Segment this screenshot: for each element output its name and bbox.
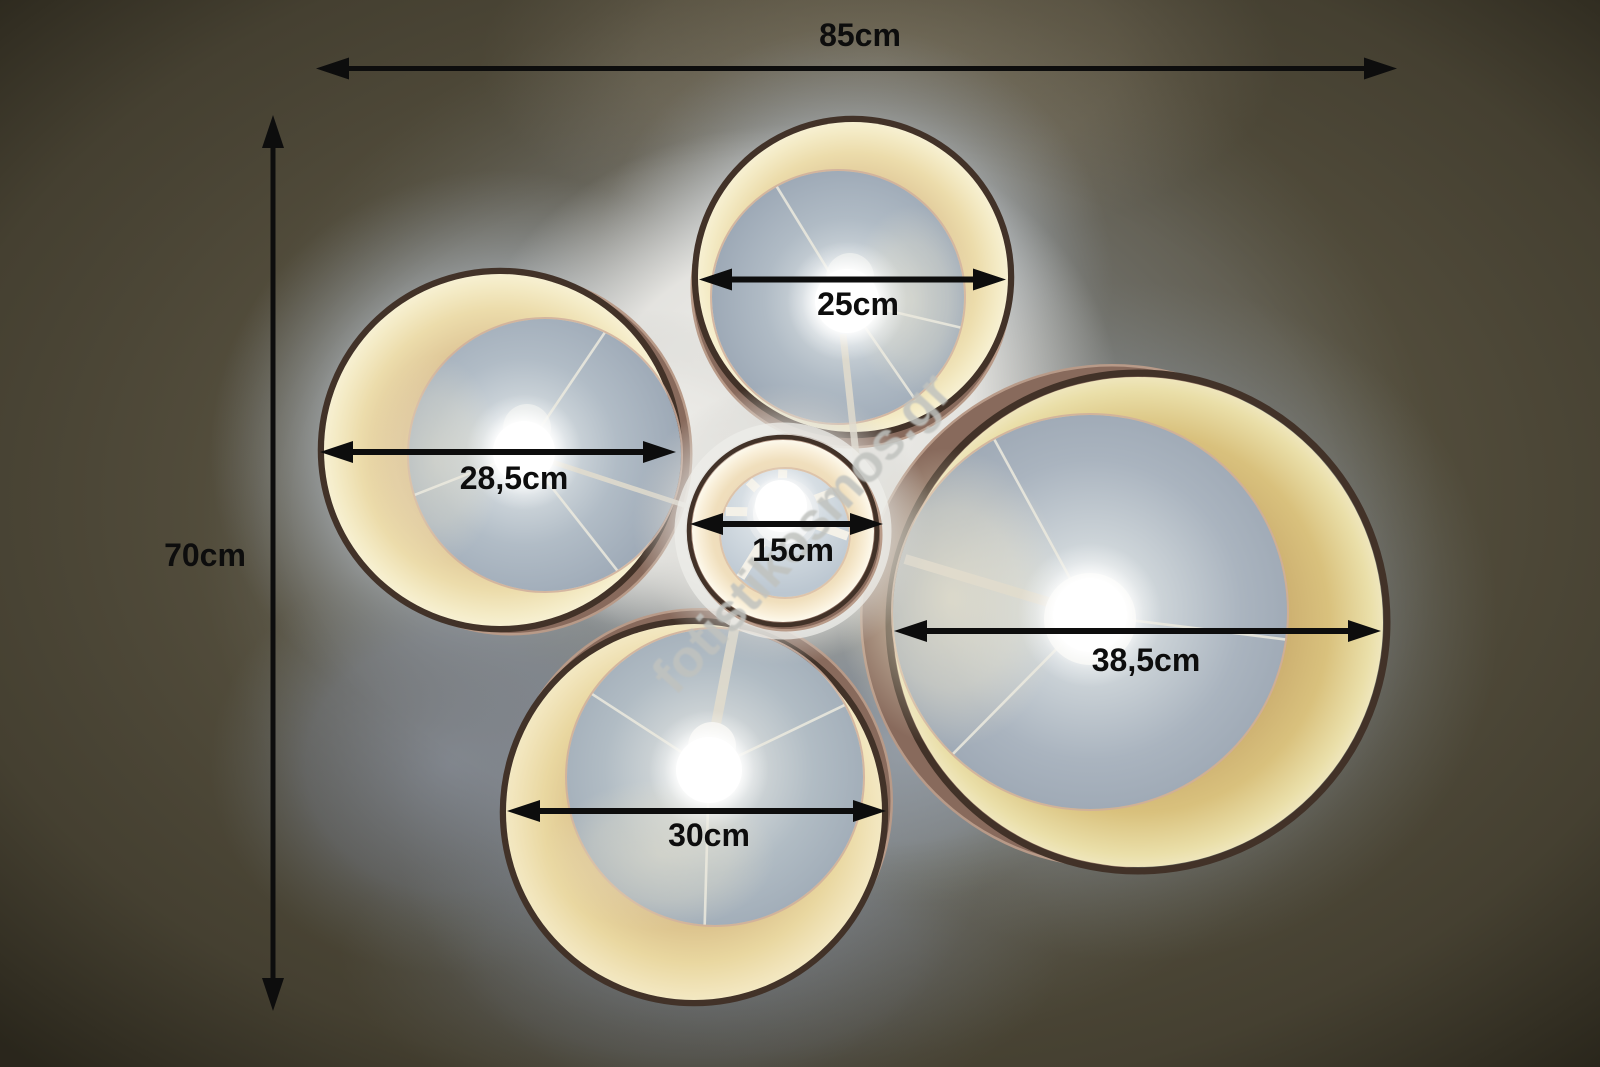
svg-text:28,5cm: 28,5cm xyxy=(460,460,569,496)
svg-text:70cm: 70cm xyxy=(164,537,246,573)
svg-text:85cm: 85cm xyxy=(819,17,901,53)
svg-text:30cm: 30cm xyxy=(668,817,750,853)
svg-text:25cm: 25cm xyxy=(817,286,899,322)
svg-text:15cm: 15cm xyxy=(752,532,834,568)
svg-text:38,5cm: 38,5cm xyxy=(1092,642,1201,678)
